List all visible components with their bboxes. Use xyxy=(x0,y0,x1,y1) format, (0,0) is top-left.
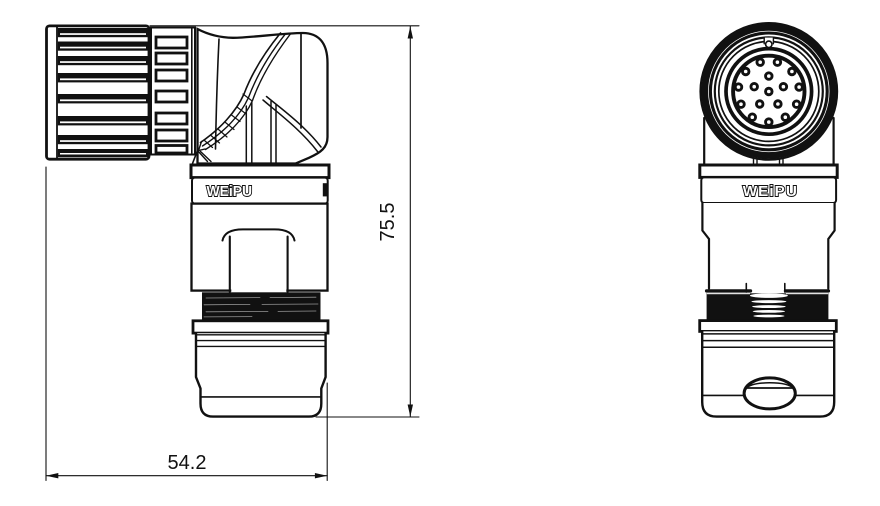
svg-text:WEiPU: WEiPU xyxy=(207,183,253,200)
svg-text:WEiPU: WEiPU xyxy=(743,183,797,200)
svg-text:54.2: 54.2 xyxy=(168,452,207,474)
svg-text:75.5: 75.5 xyxy=(377,203,399,242)
